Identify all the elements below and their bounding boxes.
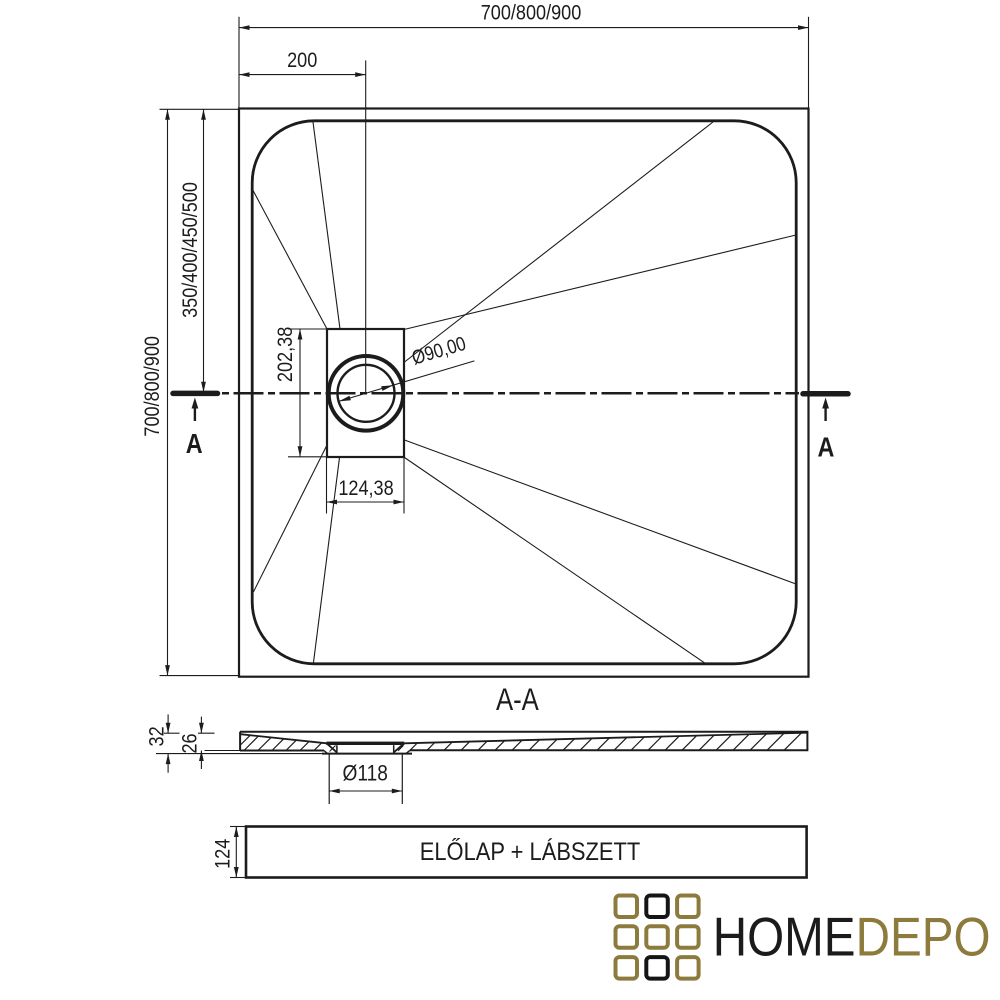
svg-text:HOMEDEPO: HOMEDEPO [713, 905, 991, 967]
svg-text:Ø90,00: Ø90,00 [409, 332, 468, 369]
svg-text:700/800/900: 700/800/900 [481, 1, 582, 25]
svg-text:202,38: 202,38 [274, 327, 298, 382]
svg-text:32: 32 [145, 726, 169, 746]
svg-text:124: 124 [211, 839, 235, 869]
svg-text:124,38: 124,38 [338, 477, 393, 501]
svg-text:200: 200 [287, 49, 317, 73]
svg-text:ELŐLAP + LÁBSZETT: ELŐLAP + LÁBSZETT [420, 837, 641, 866]
svg-text:700/800/900: 700/800/900 [141, 336, 165, 437]
svg-text:Ø118: Ø118 [343, 761, 388, 786]
svg-text:A: A [186, 429, 203, 459]
svg-text:26: 26 [178, 733, 202, 753]
svg-text:A: A [818, 433, 835, 463]
svg-text:350/400/450/500: 350/400/450/500 [179, 182, 203, 318]
svg-text:A-A: A-A [496, 683, 540, 718]
